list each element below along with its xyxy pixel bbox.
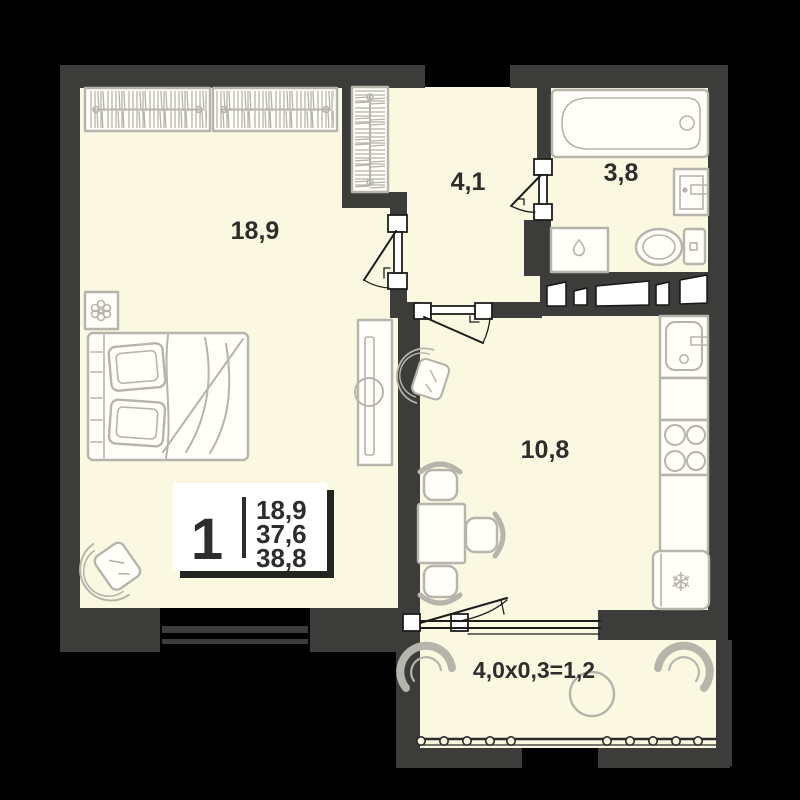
- wardrobe: [85, 88, 210, 131]
- bathroom-sink: [674, 169, 708, 215]
- room-label-hallway: 4,1: [451, 168, 486, 196]
- washing-machine: [551, 228, 608, 272]
- fridge: ❄: [653, 551, 709, 609]
- floor-plan: ❄: [0, 0, 800, 800]
- living-room-window: [160, 608, 310, 652]
- bathtub: [552, 90, 708, 157]
- room-label-bathroom: 3,8: [604, 159, 639, 187]
- pillow: [109, 399, 166, 447]
- bed: [88, 333, 248, 460]
- snowflake-icon: ❄: [670, 568, 692, 598]
- wardrobe: [213, 88, 337, 131]
- nightstand-with-plant: [85, 292, 118, 329]
- pillow: [108, 343, 166, 392]
- room-label-living: 18,9: [231, 217, 280, 245]
- entrance-opening: [425, 65, 510, 87]
- badge-divider: [242, 497, 246, 558]
- toilet: [636, 229, 705, 265]
- wardrobe-vertical: [352, 87, 388, 192]
- tv-stand: [355, 320, 392, 465]
- room-label-balcony: 4,0x0,3=1,2: [473, 657, 595, 683]
- room-label-kitchen: 10,8: [521, 436, 570, 464]
- floor-plan-canvas: ❄: [0, 0, 800, 800]
- area-badge: 1 18,9 37,6 38,8: [173, 483, 334, 578]
- badge-total-area: 38,8: [256, 543, 307, 573]
- badge-rooms-count: 1: [191, 507, 223, 572]
